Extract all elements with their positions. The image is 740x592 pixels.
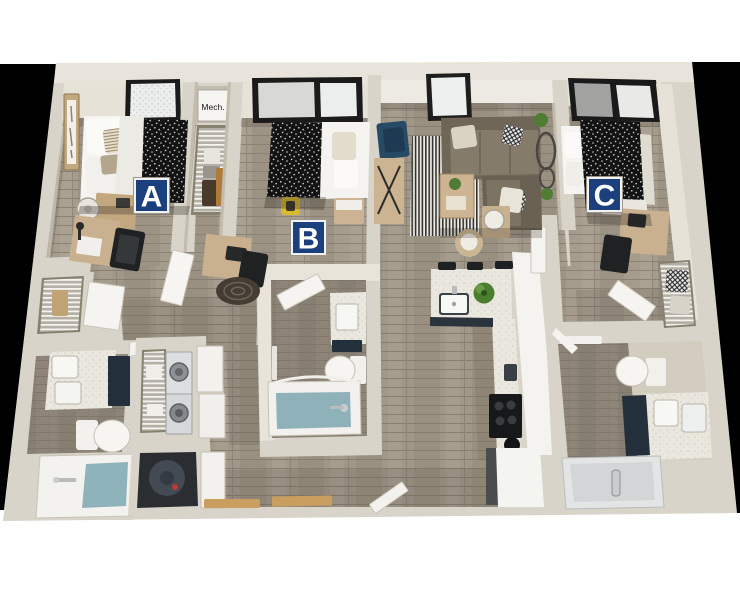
svg-text:A: A: [141, 181, 163, 214]
svg-text:B: B: [298, 223, 320, 256]
svg-text:C: C: [594, 180, 616, 213]
svg-text:Mech.: Mech.: [201, 102, 224, 112]
